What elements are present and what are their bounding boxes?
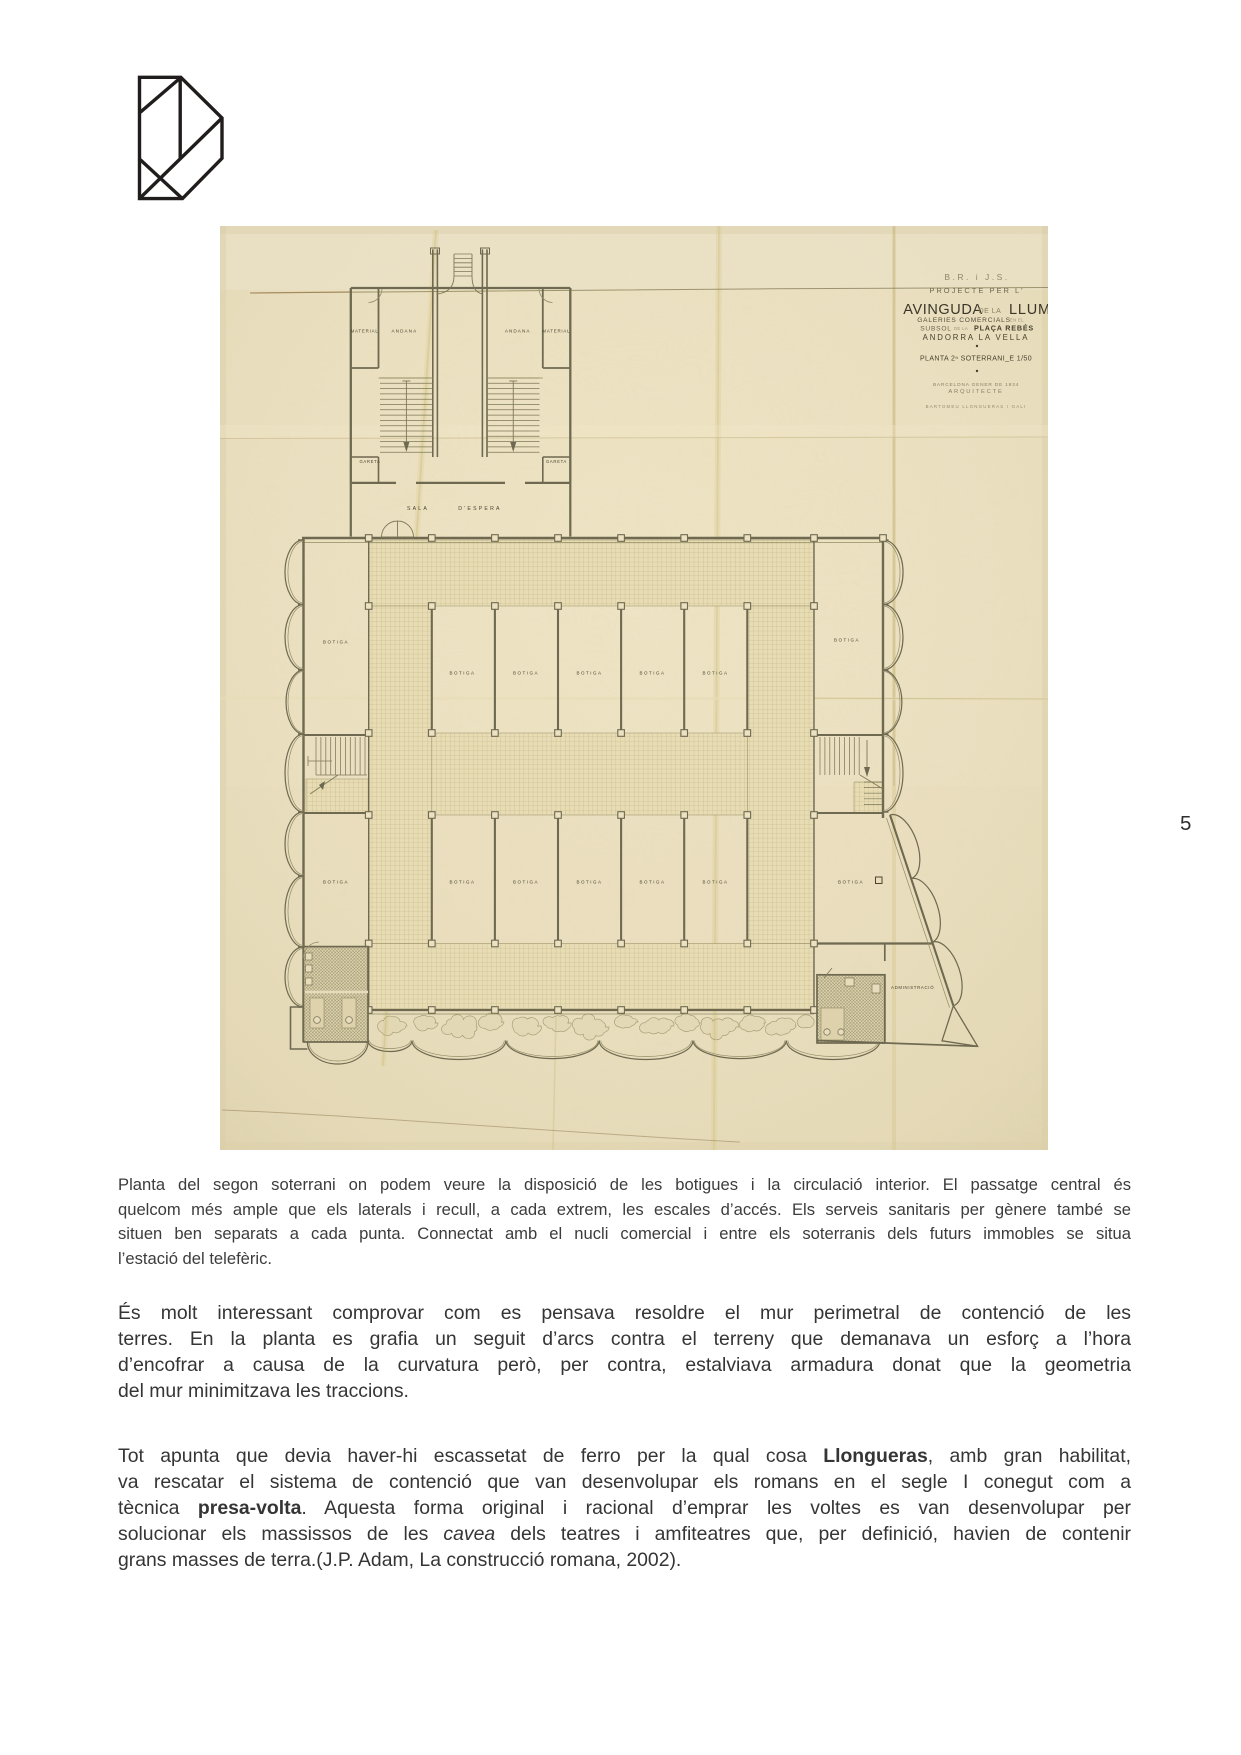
svg-text:B.R. i J.S.: B.R. i J.S. — [944, 272, 1009, 282]
svg-text:BOTIGA: BOTIGA — [513, 671, 539, 676]
svg-text:BOTIGA: BOTIGA — [576, 671, 602, 676]
svg-text:ANDORRA LA VELLA: ANDORRA LA VELLA — [923, 333, 1030, 342]
svg-text:BOTIGA: BOTIGA — [838, 880, 864, 885]
svg-text:DE LA: DE LA — [954, 326, 968, 331]
svg-text:PLANTA 2ⁿ SOTERRANI_E 1/50: PLANTA 2ⁿ SOTERRANI_E 1/50 — [920, 356, 1032, 363]
svg-text:ARQUITECTE: ARQUITECTE — [948, 389, 1003, 395]
svg-text:BOTIGA: BOTIGA — [449, 671, 475, 676]
svg-text:DE LA: DE LA — [979, 308, 1002, 315]
svg-text:SUBSOL: SUBSOL — [920, 326, 952, 333]
svg-text:ADMINISTRACIÓ: ADMINISTRACIÓ — [891, 985, 934, 990]
svg-text:ANDANA: ANDANA — [505, 329, 531, 334]
svg-text:SALA: SALA — [407, 506, 429, 512]
svg-text:BOTIGA: BOTIGA — [702, 671, 728, 676]
svg-text:BARTOMEU LLONGUERAS I GALI: BARTOMEU LLONGUERAS I GALI — [926, 404, 1027, 409]
svg-text:BOTIGA: BOTIGA — [449, 880, 475, 885]
svg-text:MATERIAL: MATERIAL — [351, 329, 379, 334]
svg-text:BARCELONA GENER DE 1934: BARCELONA GENER DE 1934 — [933, 382, 1019, 388]
svg-text:GARETA: GARETA — [359, 459, 380, 464]
svg-text:GARETA: GARETA — [546, 459, 567, 464]
svg-text:D'ESPERA: D'ESPERA — [458, 506, 501, 512]
svg-text:PROJECTE PER L': PROJECTE PER L' — [929, 286, 1024, 295]
svg-text:BOTIGA: BOTIGA — [834, 638, 860, 643]
svg-text:BOTIGA: BOTIGA — [323, 640, 349, 645]
svg-text:ANDANA: ANDANA — [392, 329, 418, 334]
svg-text:BOTIGA: BOTIGA — [576, 880, 602, 885]
svg-text:BOTIGA: BOTIGA — [702, 880, 728, 885]
svg-text:BOTIGA: BOTIGA — [323, 880, 349, 885]
svg-text:BOTIGA: BOTIGA — [639, 880, 665, 885]
svg-text:AVINGUDA: AVINGUDA — [903, 302, 982, 318]
svg-text:PLAÇA REBÉS: PLAÇA REBÉS — [974, 324, 1034, 333]
svg-text:BOTIGA: BOTIGA — [513, 880, 539, 885]
svg-text:LLUM: LLUM — [1009, 302, 1048, 318]
svg-text:BOTIGA: BOTIGA — [639, 671, 665, 676]
svg-text:EN EL: EN EL — [1010, 318, 1024, 323]
svg-text:MATERIAL: MATERIAL — [542, 329, 570, 334]
